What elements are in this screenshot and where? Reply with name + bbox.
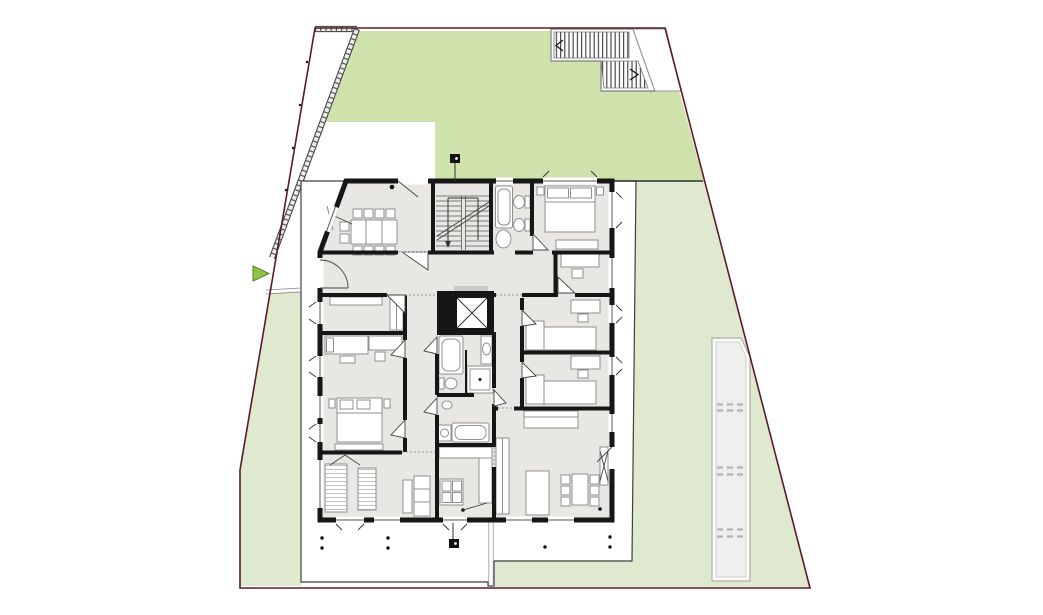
sofa	[524, 411, 578, 428]
washing-machine	[438, 425, 451, 441]
bench	[335, 444, 383, 450]
toilet	[445, 378, 457, 389]
counter	[439, 447, 492, 458]
sink	[496, 230, 511, 248]
dining-table	[572, 474, 588, 505]
island	[526, 471, 549, 515]
bed	[544, 327, 596, 350]
shelf	[330, 297, 382, 305]
chair	[572, 269, 583, 278]
entry-door	[317, 258, 324, 288]
bedroom-west-3	[329, 398, 390, 450]
deck-hatch-upper	[554, 32, 629, 58]
side-table	[340, 356, 355, 363]
building-floorplan	[309, 171, 622, 530]
dresser	[556, 240, 598, 249]
elevator	[437, 286, 494, 334]
toilet-tank	[525, 196, 530, 208]
toilet	[514, 196, 525, 209]
cabinet	[414, 476, 430, 516]
bidet	[514, 219, 525, 232]
shelf-unit	[403, 480, 412, 513]
west-garden	[240, 291, 301, 586]
sink	[442, 401, 452, 409]
sofa-2	[358, 468, 376, 510]
desk	[561, 254, 599, 267]
site-plan-svg	[0, 0, 1043, 615]
garage-ramp	[712, 338, 750, 581]
site-plan-stage	[0, 0, 1043, 615]
desk	[571, 300, 600, 313]
sofa	[325, 464, 347, 512]
entrance-arrow-icon	[253, 266, 269, 281]
sink	[483, 343, 491, 355]
terrace-door-east	[609, 447, 616, 469]
nightstand	[537, 187, 544, 195]
